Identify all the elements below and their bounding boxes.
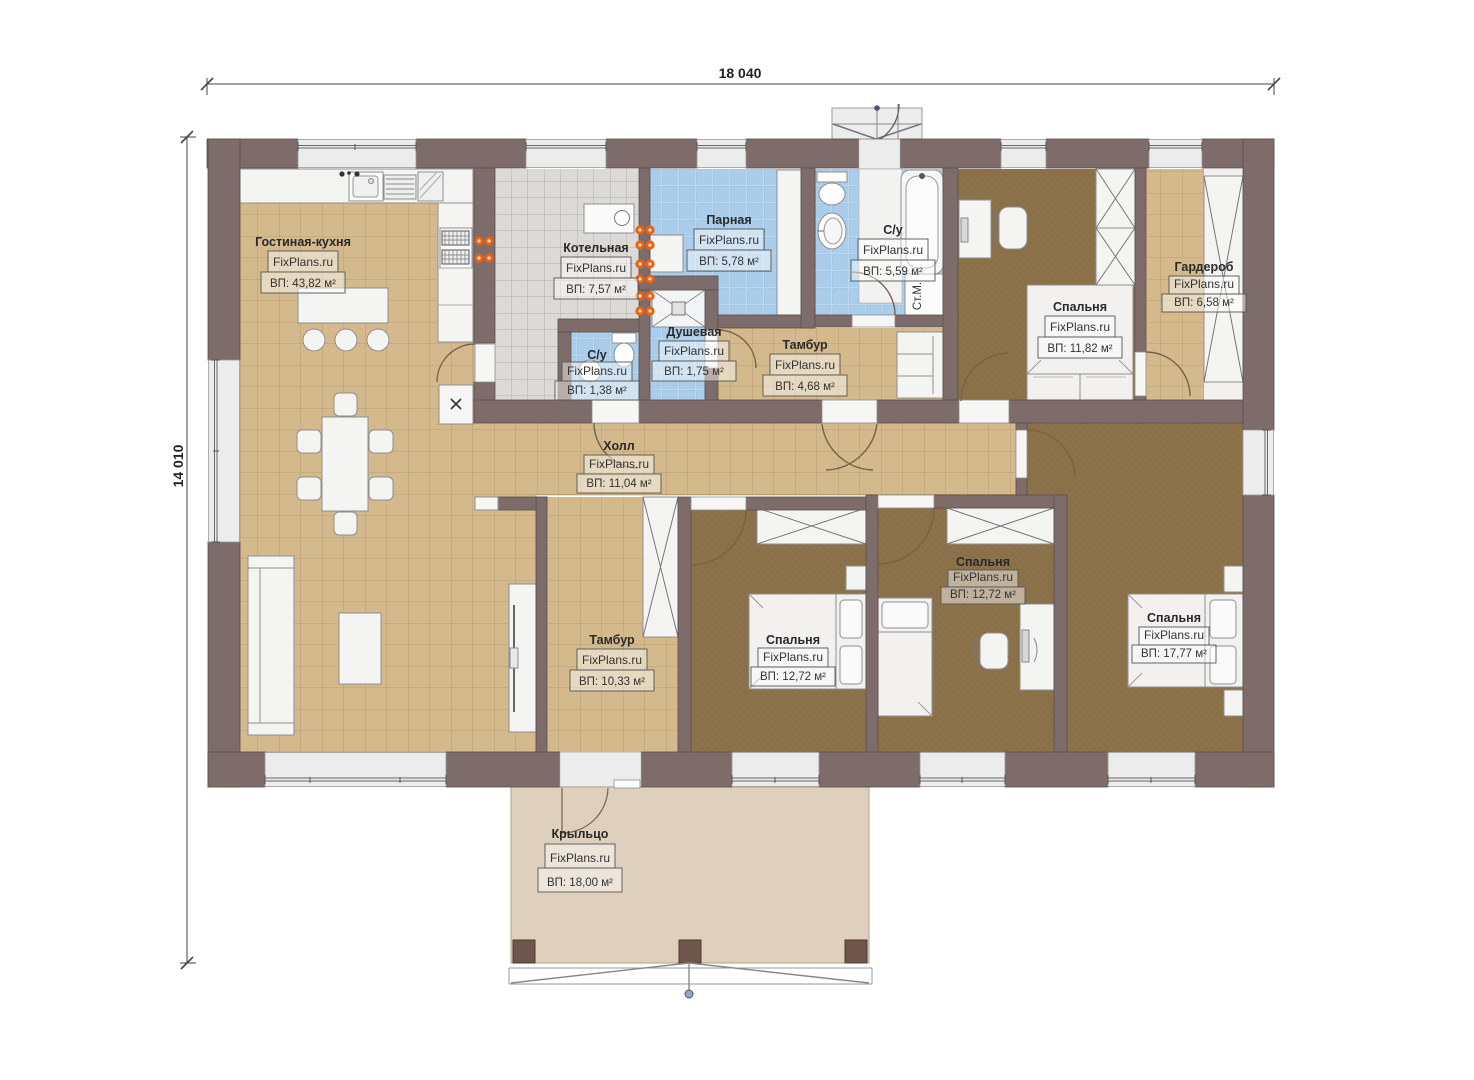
svg-text:FixPlans.ru: FixPlans.ru — [763, 650, 823, 664]
svg-text:FixPlans.ru: FixPlans.ru — [1050, 320, 1110, 334]
svg-text:ВП: 7,57 м²: ВП: 7,57 м² — [566, 284, 626, 296]
svg-text:Душевая: Душевая — [666, 325, 721, 339]
svg-text:ВП: 11,04 м²: ВП: 11,04 м² — [586, 478, 651, 490]
svg-text:Спальня: Спальня — [956, 555, 1010, 569]
svg-text:ВП: 11,82 м²: ВП: 11,82 м² — [1047, 343, 1112, 355]
svg-text:ВП: 18,00 м²: ВП: 18,00 м² — [547, 877, 613, 889]
svg-text:ВП: 12,72 м²: ВП: 12,72 м² — [950, 589, 1016, 601]
svg-text:Гостиная-кухня: Гостиная-кухня — [255, 235, 351, 249]
svg-text:FixPlans.ru: FixPlans.ru — [550, 851, 610, 865]
svg-text:Парная: Парная — [706, 213, 751, 227]
svg-text:Тамбур: Тамбур — [782, 338, 828, 352]
svg-text:ВП: 1,38 м²: ВП: 1,38 м² — [567, 385, 627, 397]
svg-text:Ст.М.: Ст.М. — [912, 282, 924, 310]
svg-text:FixPlans.ru: FixPlans.ru — [775, 358, 835, 372]
svg-text:ВП: 17,77 м²: ВП: 17,77 м² — [1141, 648, 1207, 660]
svg-text:ВП: 1,75 м²: ВП: 1,75 м² — [664, 366, 724, 378]
svg-text:18 040: 18 040 — [719, 65, 762, 81]
svg-text:FixPlans.ru: FixPlans.ru — [699, 233, 759, 247]
svg-text:Котельная: Котельная — [563, 241, 628, 255]
svg-text:14 010: 14 010 — [170, 444, 186, 487]
svg-text:ВП: 4,68 м²: ВП: 4,68 м² — [775, 381, 835, 393]
svg-text:Холл: Холл — [603, 439, 634, 453]
svg-text:ВП: 43,82 м²: ВП: 43,82 м² — [270, 278, 336, 290]
svg-text:Гардероб: Гардероб — [1174, 260, 1233, 274]
svg-text:FixPlans.ru: FixPlans.ru — [589, 457, 649, 471]
svg-text:FixPlans.ru: FixPlans.ru — [664, 344, 724, 358]
svg-text:FixPlans.ru: FixPlans.ru — [863, 243, 923, 257]
svg-text:FixPlans.ru: FixPlans.ru — [953, 570, 1013, 584]
svg-text:ВП: 12,72 м²: ВП: 12,72 м² — [760, 671, 826, 683]
svg-text:FixPlans.ru: FixPlans.ru — [566, 261, 626, 275]
svg-text:FixPlans.ru: FixPlans.ru — [273, 255, 333, 269]
svg-text:Спальня: Спальня — [1147, 611, 1201, 625]
svg-text:С/у: С/у — [883, 223, 903, 237]
svg-text:Спальня: Спальня — [1053, 300, 1107, 314]
svg-text:ВП: 5,78 м²: ВП: 5,78 м² — [699, 256, 759, 268]
svg-text:Спальня: Спальня — [766, 633, 820, 647]
svg-text:Крыльцо: Крыльцо — [552, 827, 609, 841]
svg-text:ВП: 5,59 м²: ВП: 5,59 м² — [863, 266, 923, 278]
svg-text:FixPlans.ru: FixPlans.ru — [582, 653, 642, 667]
svg-text:Тамбур: Тамбур — [589, 633, 635, 647]
svg-text:С/у: С/у — [587, 348, 607, 362]
svg-text:FixPlans.ru: FixPlans.ru — [1144, 628, 1204, 642]
svg-text:ВП: 6,58 м²: ВП: 6,58 м² — [1174, 297, 1234, 309]
svg-text:FixPlans.ru: FixPlans.ru — [1174, 277, 1234, 291]
svg-text:ВП: 10,33 м²: ВП: 10,33 м² — [579, 676, 645, 688]
svg-text:FixPlans.ru: FixPlans.ru — [567, 364, 627, 378]
